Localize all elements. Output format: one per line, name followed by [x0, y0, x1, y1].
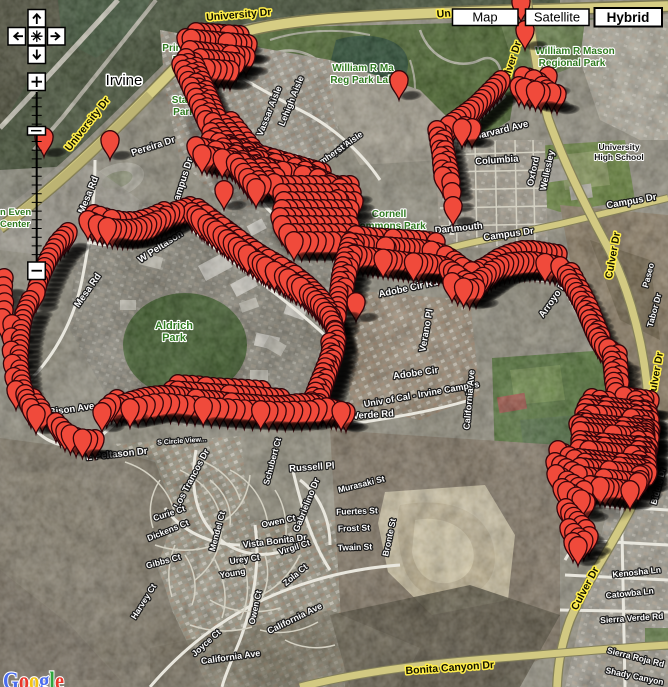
svg-text:William R Ma: William R Ma — [332, 63, 394, 74]
svg-text:William R Mason: William R Mason — [535, 46, 614, 57]
svg-text:Irvine: Irvine — [106, 72, 143, 89]
svg-text:Hybrid: Hybrid — [607, 10, 650, 25]
svg-text:Un: Un — [436, 7, 451, 20]
svg-text:Fuertes St: Fuertes St — [336, 505, 378, 516]
svg-text:Google: Google — [3, 668, 64, 687]
svg-text:Aldrich: Aldrich — [155, 320, 193, 332]
svg-text:High School: High School — [594, 152, 644, 162]
svg-text:n Even: n Even — [0, 207, 31, 218]
svg-text:Park: Park — [162, 332, 187, 344]
svg-text:University: University — [598, 142, 639, 152]
svg-text:Center: Center — [0, 219, 30, 230]
svg-text:Map: Map — [472, 10, 497, 25]
svg-text:Frost St: Frost St — [338, 522, 371, 533]
svg-text:Reg Park Lak: Reg Park Lak — [330, 75, 394, 86]
svg-text:Twain St: Twain St — [338, 541, 373, 552]
svg-text:Satellite: Satellite — [534, 10, 580, 25]
